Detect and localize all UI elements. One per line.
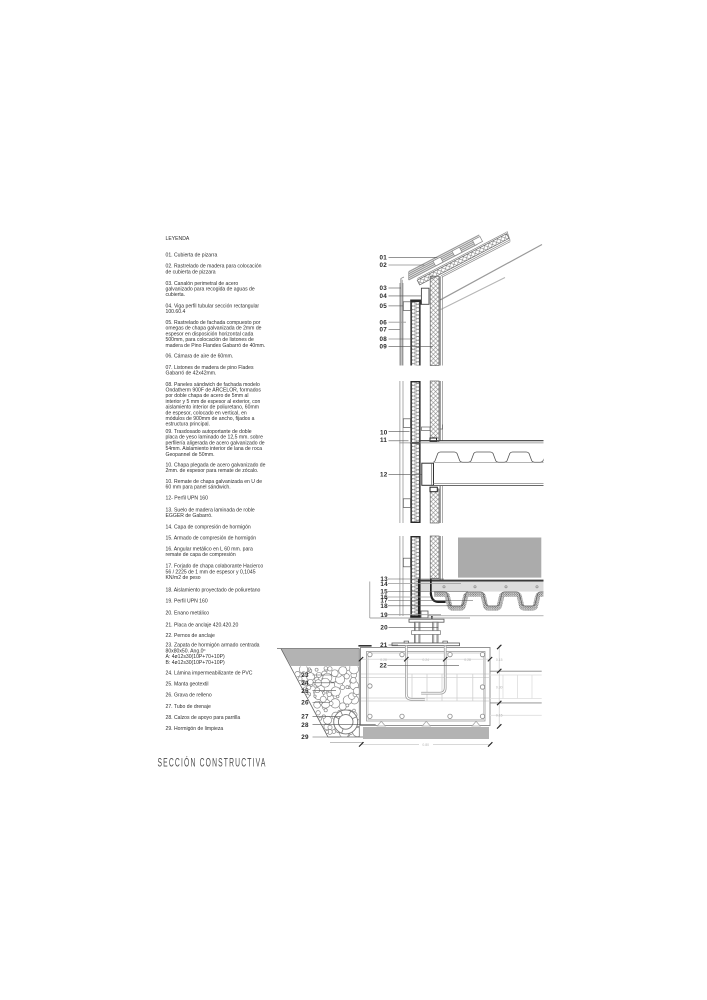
svg-text:25. Manta geotextil: 25. Manta geotextil: [166, 682, 209, 688]
svg-text:0.28: 0.28: [464, 658, 471, 662]
svg-text:01. Cubierta de pizarra: 01. Cubierta de pizarra: [166, 252, 218, 258]
svg-text:28: 28: [301, 722, 309, 729]
svg-text:28. Calzos de apoyo para parri: 28. Calzos de apoyo para parrilla: [166, 715, 241, 721]
svg-text:12: 12: [380, 472, 388, 479]
svg-text:21: 21: [380, 642, 388, 649]
svg-text:20. Enano metálico: 20. Enano metálico: [166, 610, 210, 616]
svg-text:03: 03: [380, 285, 388, 292]
svg-text:100.60.4: 100.60.4: [166, 309, 186, 315]
svg-text:19: 19: [380, 612, 388, 619]
svg-text:24. Lámina impermeabilizante d: 24. Lámina impermeabilizante de PVC: [166, 671, 253, 677]
svg-text:29: 29: [301, 734, 309, 741]
svg-text:25: 25: [301, 688, 309, 695]
svg-text:19. Perfil UPN 160: 19. Perfil UPN 160: [166, 599, 208, 605]
svg-text:27. Tubo de drenaje: 27. Tubo de drenaje: [166, 704, 211, 710]
svg-text:21. Placa de anclaje 420.420.2: 21. Placa de anclaje 420.420.20: [166, 623, 239, 629]
svg-text:60 mm para panel sándwich.: 60 mm para panel sándwich.: [166, 485, 231, 491]
svg-text:remate de capa de compresión: remate de capa de compresión: [166, 552, 236, 558]
svg-text:12- Perfil UPN 160: 12- Perfil UPN 160: [166, 496, 209, 502]
svg-text:04: 04: [380, 293, 388, 300]
svg-text:0.28: 0.28: [380, 658, 387, 662]
svg-text:24: 24: [301, 680, 309, 687]
svg-text:0.15: 0.15: [496, 713, 503, 717]
svg-text:26. Grava de relleno: 26. Grava de relleno: [166, 693, 212, 699]
svg-text:29. Hormigón de limpieza: 29. Hormigón de limpieza: [166, 726, 224, 732]
svg-text:11: 11: [380, 437, 387, 444]
svg-text:06: 06: [380, 319, 388, 326]
svg-text:06. Cámara de aire de 60mm.: 06. Cámara de aire de 60mm.: [166, 354, 234, 360]
svg-text:0.30: 0.30: [496, 686, 503, 690]
svg-text:23: 23: [301, 672, 309, 679]
svg-text:0.80: 0.80: [422, 743, 429, 747]
svg-text:SECCIÓN CONSTRUCTIVA: SECCIÓN CONSTRUCTIVA: [158, 757, 267, 770]
svg-text:madera de Pino Flandes Gabarró: madera de Pino Flandes Gabarró de 40mm.: [166, 343, 266, 349]
svg-text:22: 22: [380, 663, 388, 670]
svg-text:cubierta.: cubierta.: [166, 292, 186, 298]
svg-text:20: 20: [380, 625, 388, 632]
svg-text:LEYENDA: LEYENDA: [166, 236, 190, 242]
svg-text:08: 08: [380, 336, 388, 343]
svg-text:07: 07: [380, 327, 388, 334]
svg-text:05: 05: [380, 303, 388, 310]
svg-text:B: 4ø12s30(10P+70+10P): B: 4ø12s30(10P+70+10P): [166, 660, 225, 666]
svg-text:de cubierta de pizzara: de cubierta de pizzara: [166, 269, 216, 275]
svg-text:14. Capa de compresión de horm: 14. Capa de compresión de hormigón: [166, 524, 251, 530]
svg-text:14: 14: [380, 581, 388, 588]
svg-text:18: 18: [380, 603, 388, 610]
svg-text:02: 02: [380, 262, 388, 269]
svg-text:KN/m2 de peso: KN/m2 de peso: [166, 575, 201, 581]
svg-text:EGGER de Gabarró.: EGGER de Gabarró.: [166, 513, 213, 519]
svg-text:09: 09: [380, 344, 388, 351]
svg-text:Gabarró de 42x42mm.: Gabarró de 42x42mm.: [166, 371, 217, 377]
svg-text:Geopannel de 50mm.: Geopannel de 50mm.: [166, 452, 215, 458]
svg-text:22. Pernos de anclaje: 22. Pernos de anclaje: [166, 633, 215, 639]
svg-text:26: 26: [301, 700, 309, 707]
svg-text:2mm. de espesor para remate de: 2mm. de espesor para remate de zócalo.: [166, 468, 259, 474]
svg-text:estructura principal.: estructura principal.: [166, 422, 210, 428]
svg-text:27: 27: [301, 714, 309, 721]
svg-text:10: 10: [380, 430, 388, 437]
svg-text:0.15: 0.15: [496, 658, 503, 662]
svg-text:18. Aislamiento proyectado de: 18. Aislamiento proyectado de poliuretan…: [166, 588, 261, 594]
svg-text:15. Armado de compresión de ho: 15. Armado de compresión de hormigón: [166, 536, 257, 542]
svg-text:01: 01: [380, 255, 388, 262]
svg-text:0.24: 0.24: [422, 658, 429, 662]
